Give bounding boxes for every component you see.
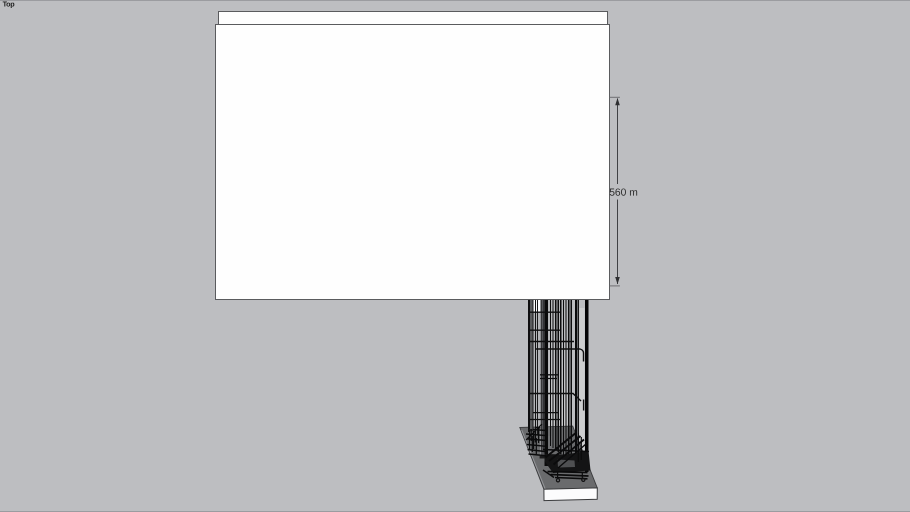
svg-text:Top: Top bbox=[3, 0, 16, 9]
svg-text:560 m: 560 m bbox=[609, 188, 638, 199]
